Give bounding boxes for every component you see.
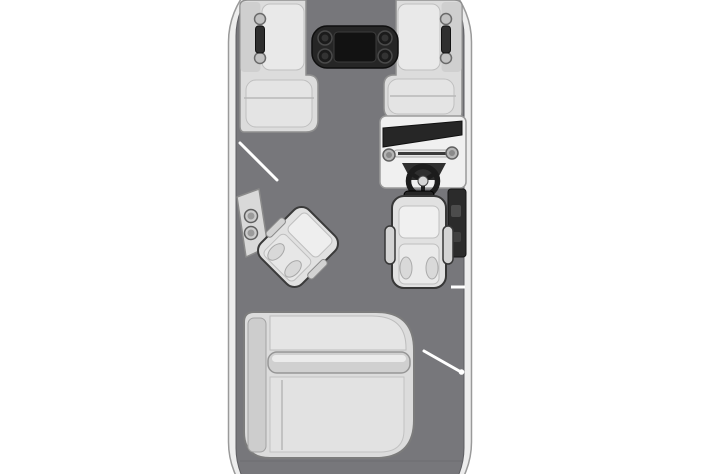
- rear-lounge-top-cushion: [270, 316, 406, 350]
- speaker-panel-starboard: [441, 14, 452, 64]
- captain-chair: [385, 191, 453, 288]
- highlight: [272, 355, 406, 362]
- speaker-icon: [442, 26, 451, 53]
- rear-lounge-armrest-strip: [248, 318, 266, 452]
- gate-latch-dot: [459, 369, 465, 375]
- armrest: [385, 226, 395, 264]
- cup-holder-inner: [248, 230, 255, 237]
- rear-lounge: [244, 312, 414, 458]
- armrest: [443, 226, 453, 264]
- boat-floorplan: [0, 0, 711, 474]
- cup-holder: [441, 14, 452, 25]
- wheel-hub: [418, 176, 428, 186]
- cup-holder-inner: [322, 53, 329, 60]
- cup-holder: [255, 14, 266, 25]
- cup-holder: [441, 53, 452, 64]
- speaker-icon: [256, 26, 265, 53]
- bow-table: [312, 26, 398, 68]
- floorplan-canvas: [0, 0, 711, 474]
- bow-lounge-starboard-cushion: [398, 4, 440, 70]
- bolster: [426, 257, 438, 279]
- cup-holder-inner: [248, 213, 255, 220]
- bow-lounge-port-cushion: [262, 4, 304, 70]
- cup-holder-inner: [322, 35, 329, 42]
- bow-lounge-port: [240, 0, 318, 132]
- bow-table-center: [334, 32, 376, 62]
- gauge-center: [386, 152, 392, 158]
- bolster: [400, 257, 412, 279]
- gauge-center: [449, 150, 455, 156]
- cup-holder-inner: [382, 53, 389, 60]
- back-cushion: [399, 206, 439, 238]
- bow-lounge-port-end-cushion: [246, 80, 312, 127]
- cup-holder: [255, 53, 266, 64]
- speaker-panel-port: [255, 14, 266, 64]
- cup-holder-inner: [382, 35, 389, 42]
- dash-slot: [398, 152, 448, 155]
- panel-detail: [451, 205, 461, 217]
- rear-lounge-seat-cushion: [270, 377, 404, 452]
